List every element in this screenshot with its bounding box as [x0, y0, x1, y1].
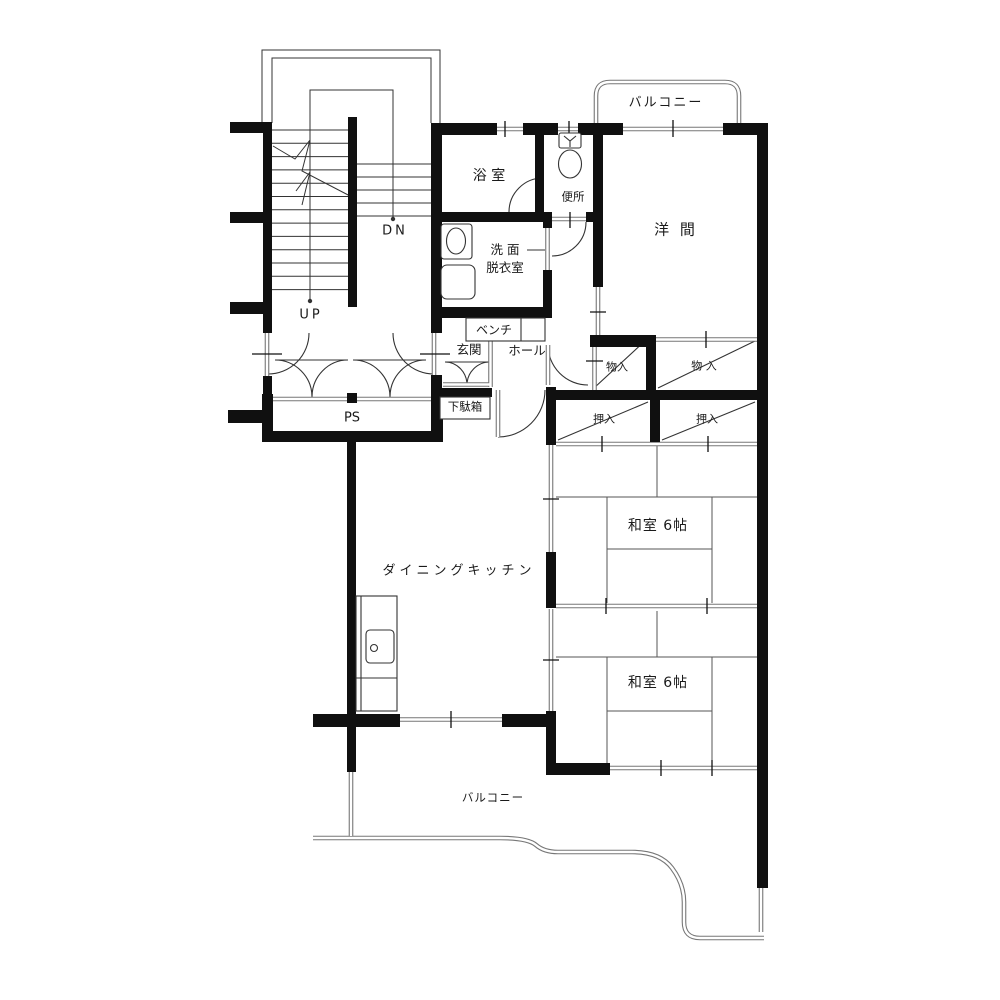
stairwell-upper-outline [262, 50, 440, 123]
label-western-room: 洋 間 [654, 223, 698, 238]
up-start-dot [308, 299, 312, 303]
porch-side-door-arcs [268, 333, 434, 374]
label-dining-kitchen: ダイニングキッチン [382, 565, 535, 578]
floor-plan: バルコニー 浴 室 便所 洋 間 洗 面 脱衣室 ベンチ 玄関 ホール 物入 物… [0, 0, 1000, 1000]
hall-corridor-door-arc [548, 345, 588, 385]
label-pipe-shaft: PS [344, 412, 360, 425]
porch-double-door-arcs [275, 360, 426, 397]
stair-break-mark [273, 140, 352, 205]
label-stairs-up: UP [299, 309, 322, 322]
label-toilet: 便所 [562, 191, 585, 203]
windows-and-railings [267, 82, 764, 938]
label-bath: 浴 室 [473, 169, 505, 183]
floorplan-drawing [0, 0, 1000, 1000]
label-storage2: 物 入 [691, 361, 717, 372]
label-bench: ベンチ [476, 324, 512, 336]
label-closet1: 押入 [593, 414, 615, 425]
label-washroom-line1: 洗 面 [491, 244, 520, 257]
label-shoe-cabinet: 下駄箱 [448, 401, 483, 413]
label-balcony-top: バルコニー [629, 97, 704, 110]
hall-dk-door-arc [498, 390, 545, 437]
toilet-icon [559, 133, 582, 178]
kitchen-sink-icon [366, 630, 394, 663]
washbasin-icon [441, 224, 472, 259]
down-start-dot [391, 217, 395, 221]
porch-door-leaves [275, 360, 490, 362]
label-closet2: 押入 [696, 414, 718, 425]
shoe-cabinet-door-arcs [445, 362, 490, 385]
toilet-door-arc [552, 222, 586, 256]
label-balcony-bottom: バルコニー [462, 792, 524, 804]
kitchen-counter [356, 596, 397, 711]
washer-pan-icon [441, 265, 475, 299]
label-japanese-room2: 和室 6帖 [628, 676, 688, 690]
label-washroom-line2: 脱衣室 [486, 262, 524, 275]
label-hall: ホール [508, 345, 546, 358]
label-entrance: 玄関 [456, 344, 481, 357]
label-stairs-down: DN [382, 225, 408, 238]
label-japanese-room1: 和室 6帖 [628, 519, 688, 533]
label-storage1: 物入 [606, 362, 628, 373]
